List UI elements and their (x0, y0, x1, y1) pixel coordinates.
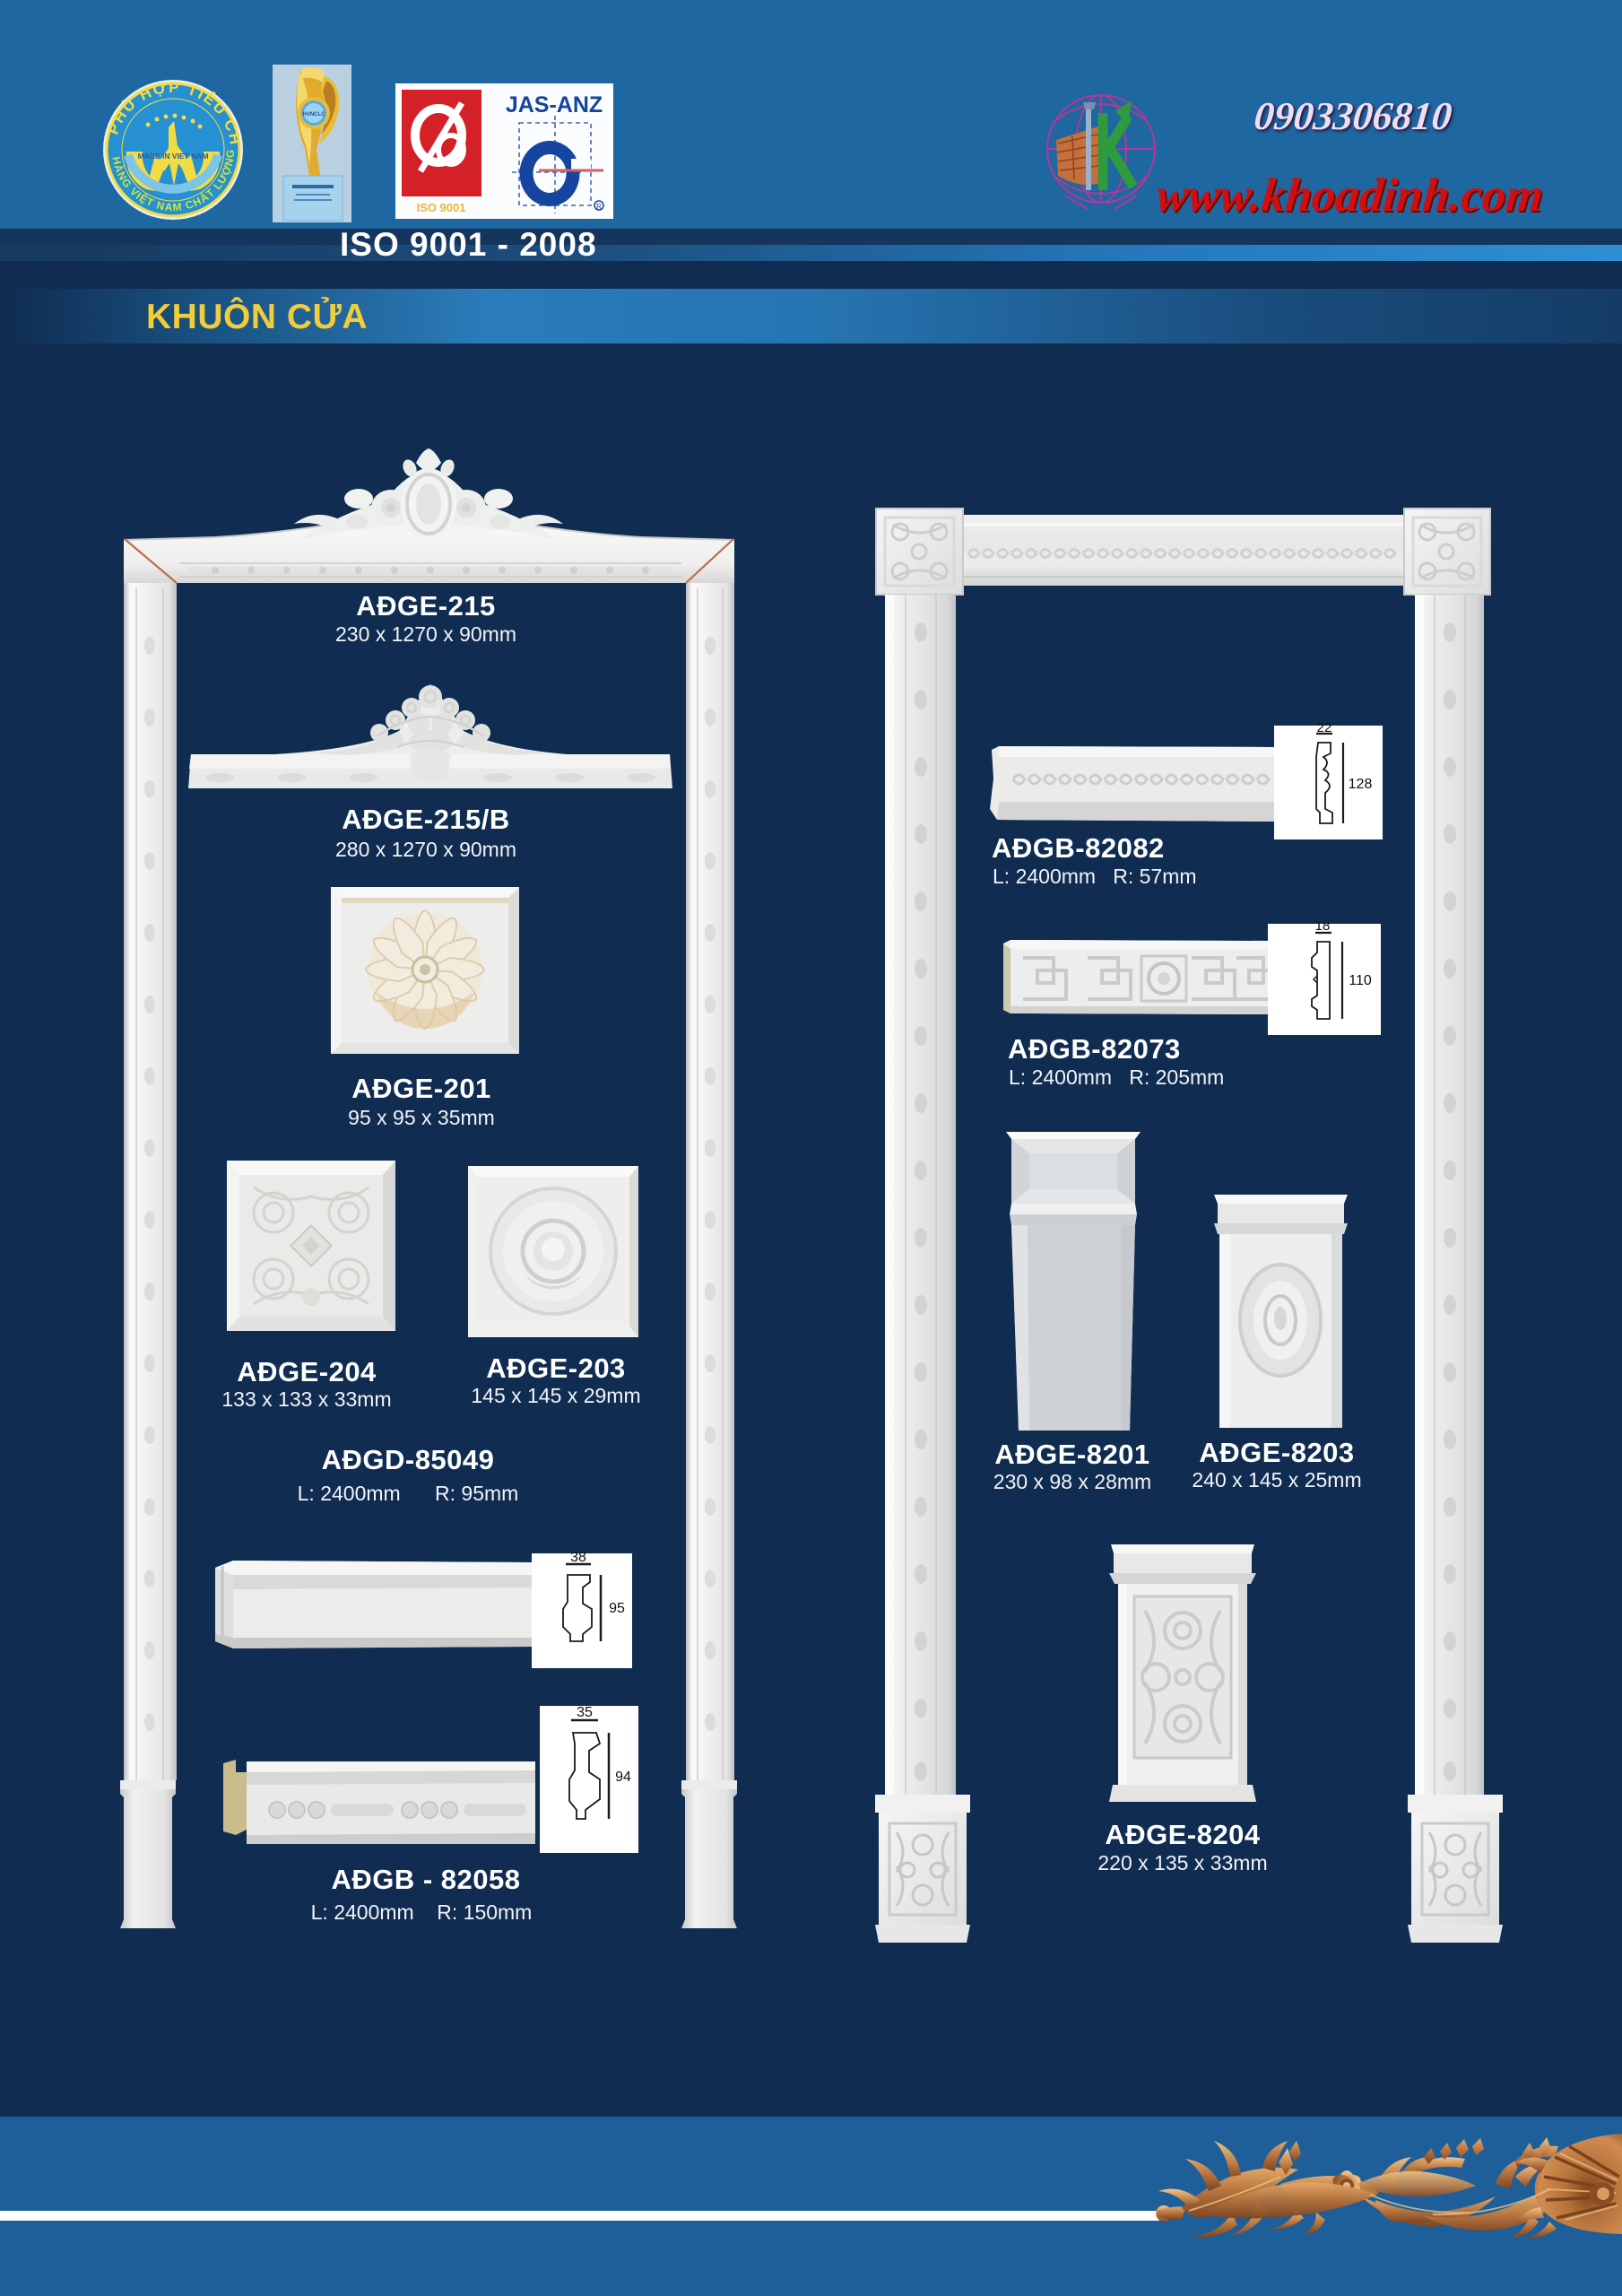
svg-text:MADE IN VIET NAM: MADE IN VIET NAM (138, 152, 209, 161)
svg-text:ISO 9001: ISO 9001 (417, 201, 466, 214)
svg-text:22: 22 (1317, 723, 1332, 735)
svg-text:HVNCLC: HVNCLC (303, 112, 326, 117)
svg-text:18: 18 (1315, 922, 1331, 934)
svg-text:38: 38 (570, 1550, 586, 1565)
svg-text:128: 128 (1349, 777, 1373, 792)
svg-text:95: 95 (609, 1601, 625, 1616)
svg-text:JAS-ANZ: JAS-ANZ (506, 92, 603, 117)
svg-text:R: R (596, 203, 602, 211)
svg-text:94: 94 (615, 1770, 631, 1785)
svg-text:35: 35 (577, 1705, 593, 1720)
svg-text:110: 110 (1349, 973, 1372, 988)
